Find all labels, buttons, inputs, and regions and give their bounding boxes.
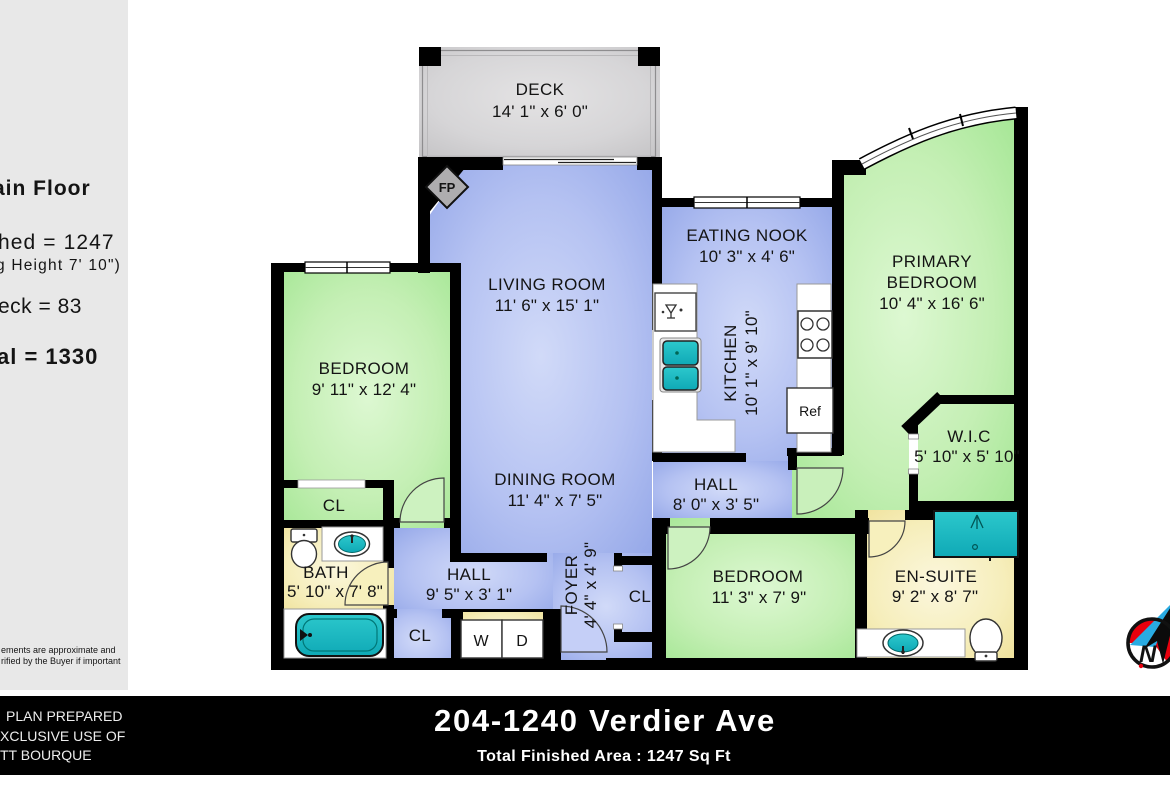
svg-text:HALL: HALL [447,565,491,584]
svg-text:BEDROOM: BEDROOM [713,567,804,586]
svg-text:BATH: BATH [303,563,349,582]
svg-text:14' 1" x 6' 0": 14' 1" x 6' 0" [492,102,588,121]
svg-text:DINING ROOM: DINING ROOM [494,470,616,489]
svg-text:4' 4" x 4' 9": 4' 4" x 4' 9" [581,542,600,628]
svg-text:KITCHEN: KITCHEN [721,324,740,401]
svg-text:5' 10" x 7' 8": 5' 10" x 7' 8" [287,582,383,601]
svg-text:11' 3" x 7' 9": 11' 3" x 7' 9" [712,588,807,607]
svg-text:BEDROOM: BEDROOM [887,273,978,292]
svg-text:Total Finished Area : 1247 Sq: Total Finished Area : 1247 Sq Ft [477,748,731,765]
svg-text:BEDROOM: BEDROOM [319,359,410,378]
svg-text:Ref: Ref [799,403,821,419]
svg-text:al = 1330: al = 1330 [0,344,98,369]
svg-text:ain Floor: ain Floor [0,177,91,200]
svg-text:FOYER: FOYER [562,555,581,616]
svg-text:9' 2" x 8' 7": 9' 2" x 8' 7" [892,587,978,606]
svg-text:eck = 83: eck = 83 [0,295,82,318]
svg-text:PRIMARY: PRIMARY [892,252,972,271]
svg-text:ements are approximate and: ements are approximate and [1,645,116,655]
svg-text:LIVING ROOM: LIVING ROOM [488,275,606,294]
svg-text:10' 3" x 4' 6": 10' 3" x 4' 6" [699,247,795,266]
svg-text:W.I.C: W.I.C [947,427,991,446]
svg-text:FP: FP [439,180,456,195]
svg-text:11' 6" x 15' 1": 11' 6" x 15' 1" [495,296,599,315]
svg-text:HALL: HALL [694,475,738,494]
svg-text:EN-SUITE: EN-SUITE [895,567,978,586]
svg-text:W: W [473,633,489,650]
svg-text:g Height 7' 10"): g Height 7' 10") [0,257,121,274]
svg-text:hed = 1247: hed = 1247 [0,231,115,254]
svg-text:DECK: DECK [516,80,565,99]
svg-text:EATING NOOK: EATING NOOK [686,226,807,245]
svg-text:D: D [516,633,528,650]
svg-text:8' 0" x 3' 5": 8' 0" x 3' 5" [673,495,759,514]
svg-text:204-1240 Verdier Ave: 204-1240 Verdier Ave [434,703,776,738]
svg-text:9' 11" x 12' 4": 9' 11" x 12' 4" [312,380,416,399]
svg-text:10' 4" x 16' 6": 10' 4" x 16' 6" [879,294,985,313]
svg-text:XCLUSIVE USE OF: XCLUSIVE USE OF [0,728,125,744]
svg-text:5' 10" x 5' 10": 5' 10" x 5' 10" [914,447,1020,466]
svg-text:10' 1" x 9' 10": 10' 1" x 9' 10" [742,310,761,416]
svg-text:CL: CL [323,496,346,515]
svg-text:rified by the Buyer if importa: rified by the Buyer if important [1,656,121,666]
svg-text:CL: CL [629,587,652,606]
svg-text:CL: CL [409,626,432,645]
svg-text:9' 5" x 3' 1": 9' 5" x 3' 1" [426,585,512,604]
svg-text:11' 4" x 7' 5": 11' 4" x 7' 5" [508,491,603,510]
svg-text:TT BOURQUE: TT BOURQUE [0,747,92,763]
svg-text:PLAN PREPARED: PLAN PREPARED [6,708,122,724]
